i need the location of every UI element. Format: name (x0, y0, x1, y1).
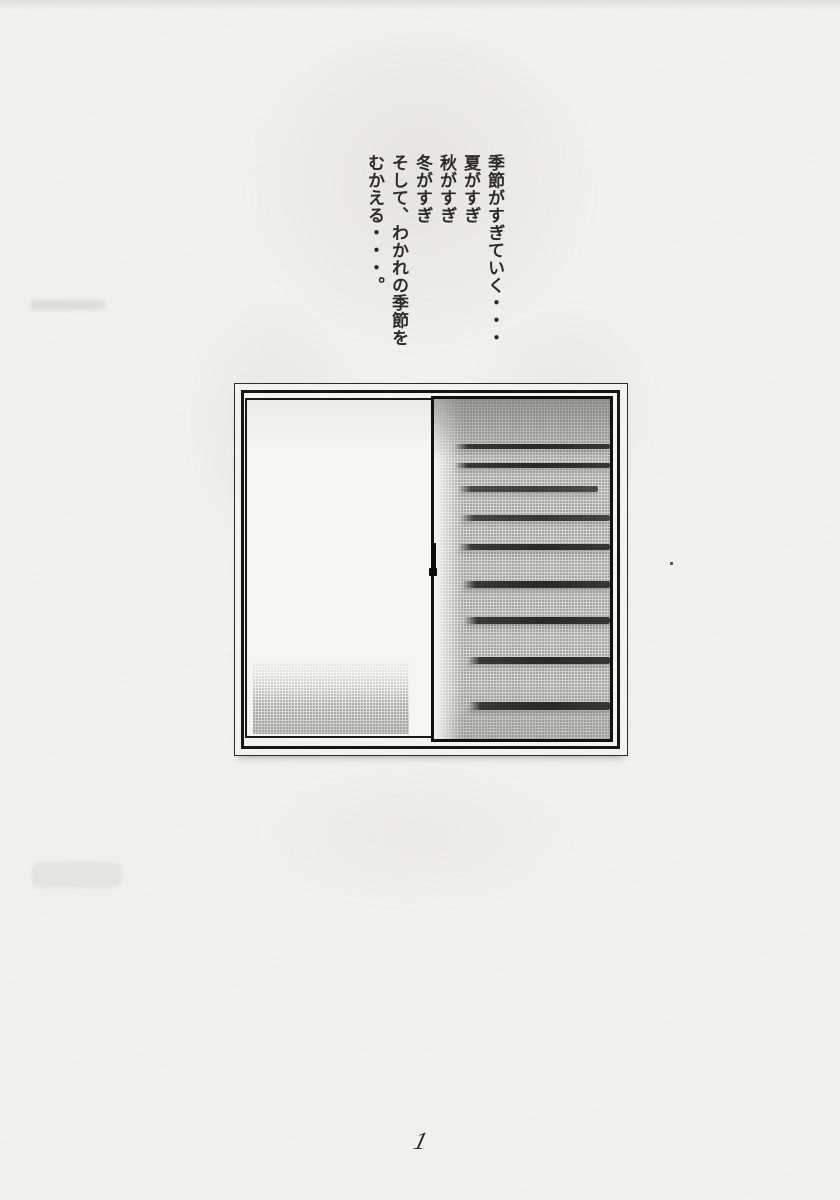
scan-speck (670, 562, 673, 565)
scanned-page: 季節がすぎていく・・・ 夏がすぎ 秋がすぎ 冬がすぎ そして、わかれの季節を む… (0, 0, 840, 1200)
bleedthrough-ghost (250, 760, 580, 910)
latch-bar (431, 546, 436, 570)
window-illustration (234, 383, 628, 756)
blind-slat (468, 702, 610, 710)
blind-slat (458, 486, 598, 492)
blind-slat (467, 657, 610, 664)
window-right-sash (431, 396, 613, 742)
latch-knob (429, 568, 437, 576)
left-pane-halftone (253, 658, 409, 734)
page-number: 1 (411, 1128, 430, 1156)
blind-slat (462, 581, 610, 588)
scan-smudge (30, 300, 105, 310)
window-latch (429, 546, 439, 580)
scan-top-shade (0, 0, 840, 10)
right-pane-glass (434, 399, 610, 739)
blind-slat (458, 544, 610, 550)
blind-slat (454, 444, 610, 449)
blind-slat (464, 617, 610, 624)
scan-smudge (32, 862, 122, 888)
blind-slat (460, 515, 610, 521)
blind-slat (454, 463, 610, 468)
